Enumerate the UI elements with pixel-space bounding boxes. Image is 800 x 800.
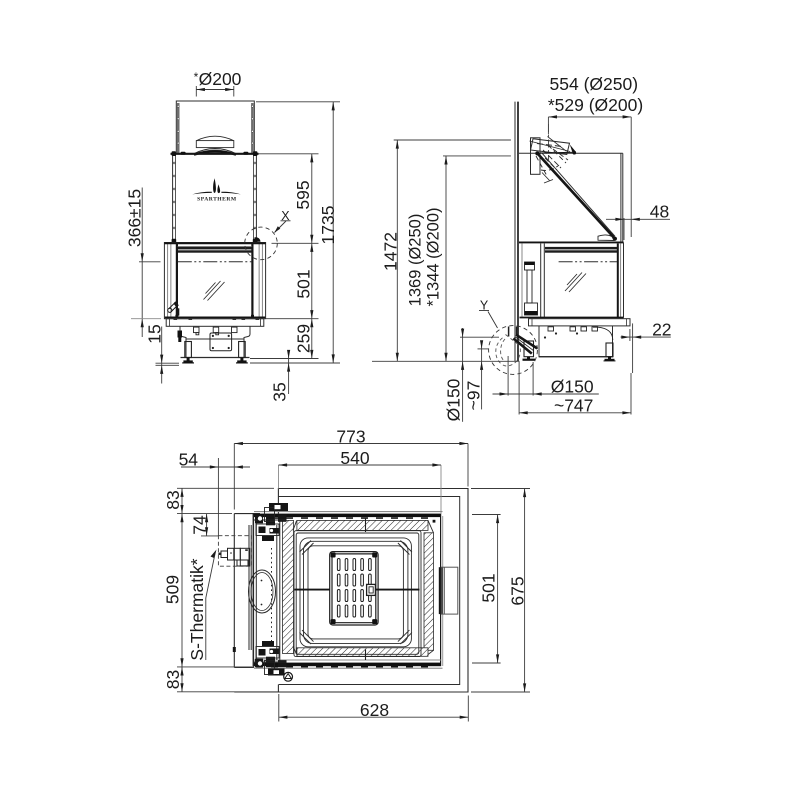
svg-text:540: 540 bbox=[340, 448, 369, 468]
svg-text:S-Thermatik*: S-Thermatik* bbox=[187, 558, 207, 660]
svg-text:501: 501 bbox=[478, 573, 498, 602]
svg-text:Ø150: Ø150 bbox=[551, 377, 594, 397]
svg-text:~97: ~97 bbox=[463, 381, 483, 411]
svg-text:1369 (Ø250): 1369 (Ø250) bbox=[407, 214, 425, 307]
svg-text:X: X bbox=[281, 209, 290, 223]
svg-text:22: 22 bbox=[652, 320, 671, 340]
svg-text:1735: 1735 bbox=[318, 206, 338, 245]
svg-text:Ø200: Ø200 bbox=[199, 69, 242, 89]
svg-text:628: 628 bbox=[360, 700, 389, 720]
svg-text:74: 74 bbox=[189, 515, 209, 535]
svg-text:509: 509 bbox=[163, 575, 183, 604]
svg-text:*529 (Ø200): *529 (Ø200) bbox=[548, 95, 643, 115]
svg-text:54: 54 bbox=[179, 450, 199, 470]
svg-text:259: 259 bbox=[294, 324, 314, 353]
svg-text:48: 48 bbox=[650, 202, 669, 222]
svg-text:SPARTHERM: SPARTHERM bbox=[197, 196, 237, 202]
svg-text:366±15: 366±15 bbox=[125, 189, 145, 247]
svg-text:83: 83 bbox=[163, 670, 183, 689]
svg-text:595: 595 bbox=[293, 180, 313, 209]
svg-text:1472: 1472 bbox=[381, 232, 401, 271]
svg-text:773: 773 bbox=[336, 427, 365, 447]
svg-text:*1344 (Ø200): *1344 (Ø200) bbox=[425, 207, 443, 306]
svg-text:Y: Y bbox=[480, 298, 489, 312]
svg-text:554 (Ø250): 554 (Ø250) bbox=[550, 74, 639, 94]
svg-text:83: 83 bbox=[163, 490, 183, 509]
svg-text:Ø150: Ø150 bbox=[444, 378, 464, 421]
svg-text:675: 675 bbox=[507, 576, 527, 605]
svg-text:35: 35 bbox=[269, 382, 289, 401]
svg-text:~747: ~747 bbox=[554, 395, 593, 415]
svg-text:501: 501 bbox=[293, 269, 313, 298]
svg-text:15: 15 bbox=[145, 324, 165, 343]
